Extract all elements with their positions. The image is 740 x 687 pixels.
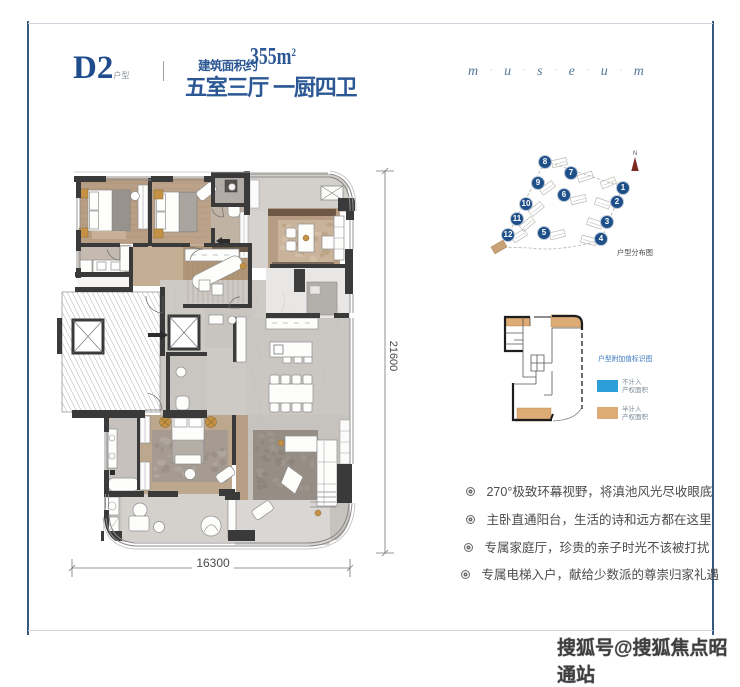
svg-text:10: 10 [522, 199, 531, 208]
svg-text:2: 2 [615, 197, 620, 206]
svg-text:16300: 16300 [196, 556, 230, 570]
svg-text:8: 8 [543, 157, 548, 166]
svg-text:户型分布图: 户型分布图 [617, 248, 653, 257]
svg-text:6: 6 [562, 190, 567, 199]
svg-text:3: 3 [605, 217, 610, 226]
svg-text:产权面积: 产权面积 [622, 385, 649, 394]
svg-text:不计入: 不计入 [622, 377, 642, 386]
svg-text:9: 9 [536, 178, 541, 187]
svg-text:产权面积: 产权面积 [622, 412, 649, 421]
svg-text:7: 7 [569, 168, 574, 177]
svg-text:11: 11 [513, 214, 522, 223]
svg-text:12: 12 [504, 230, 513, 239]
svg-text:21600: 21600 [387, 341, 399, 372]
svg-text:4: 4 [599, 234, 604, 243]
svg-text:1: 1 [621, 183, 626, 192]
svg-text:5: 5 [542, 228, 547, 237]
svg-text:户型附加值标识图: 户型附加值标识图 [598, 354, 653, 363]
svg-text:半计入: 半计入 [622, 404, 642, 413]
svg-text:N: N [633, 151, 637, 157]
